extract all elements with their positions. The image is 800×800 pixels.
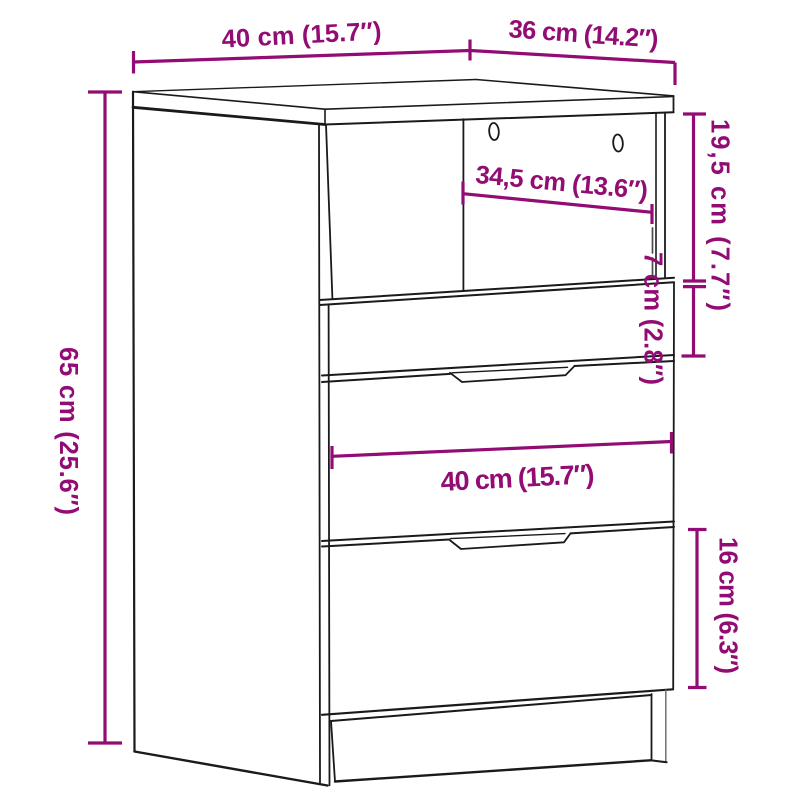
svg-text:40 cm (15.7″): 40 cm (15.7″) (221, 17, 382, 53)
svg-text:65 cm (25.6″): 65 cm (25.6″) (54, 347, 82, 515)
svg-text:16 cm (6.3″): 16 cm (6.3″) (714, 537, 742, 674)
svg-text:40 cm (15.7″): 40 cm (15.7″) (440, 459, 595, 497)
svg-text:36 cm (14.2″): 36 cm (14.2″) (508, 15, 660, 53)
svg-text:7 cm (2.8″): 7 cm (2.8″) (639, 252, 667, 385)
svg-text:19,5 cm (7.7″): 19,5 cm (7.7″) (706, 119, 734, 311)
